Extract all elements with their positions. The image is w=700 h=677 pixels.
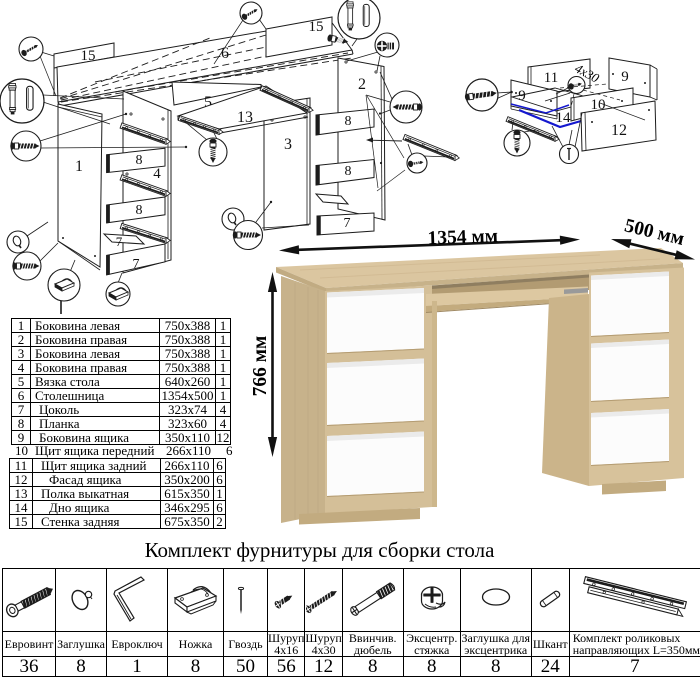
svg-text:3: 3 [284,136,292,153]
svg-text:4: 4 [153,166,161,182]
svg-text:766 мм: 766 мм [250,336,271,397]
svg-text:8: 8 [136,203,143,218]
svg-text:2: 2 [358,76,366,93]
svg-text:7: 7 [344,216,351,231]
svg-text:9: 9 [518,88,526,104]
svg-text:8: 8 [345,114,352,129]
svg-text:8: 8 [345,164,352,179]
svg-text:7: 7 [116,234,123,249]
svg-text:9: 9 [621,69,629,85]
svg-text:13: 13 [237,109,253,126]
svg-text:8: 8 [136,153,143,168]
svg-text:7: 7 [133,257,140,272]
svg-text:11: 11 [544,70,558,86]
svg-text:15: 15 [309,19,324,35]
svg-text:1: 1 [75,158,83,175]
svg-text:1354 мм: 1354 мм [427,226,498,249]
svg-text:10: 10 [591,97,606,113]
svg-text:12: 12 [611,122,627,139]
svg-text:14: 14 [556,110,572,126]
